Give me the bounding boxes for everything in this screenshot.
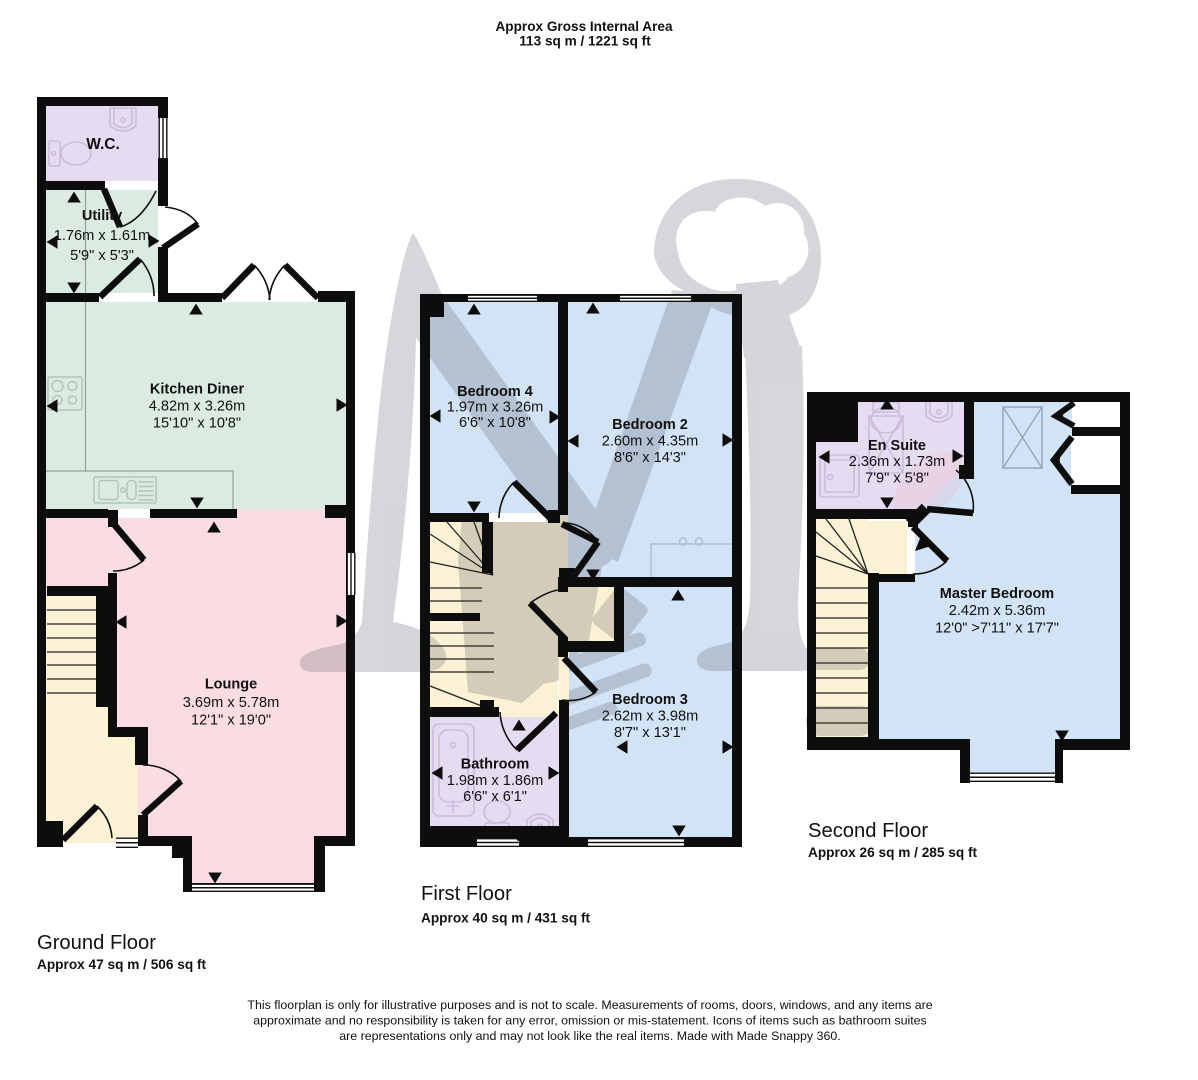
svg-text:2.60m x 4.35m: 2.60m x 4.35m [602,434,699,450]
svg-text:Lounge: Lounge [205,677,257,693]
svg-text:12'0" >7'11" x 17'7": 12'0" >7'11" x 17'7" [935,621,1059,637]
svg-text:1.98m x 1.86m: 1.98m x 1.86m [447,773,544,789]
svg-text:2.36m x 1.73m: 2.36m x 1.73m [849,454,946,470]
svg-text:8'6" x 14'3": 8'6" x 14'3" [614,450,686,466]
svg-text:Approx 40 sq m / 431 sq ft: Approx 40 sq m / 431 sq ft [421,911,591,926]
svg-text:113 sq m / 1221 sq ft: 113 sq m / 1221 sq ft [519,34,651,49]
svg-text:Utility: Utility [82,208,122,224]
svg-text:15'10" x 10'8": 15'10" x 10'8" [153,416,241,432]
svg-text:6'6" x 10'8": 6'6" x 10'8" [459,415,531,431]
svg-text:5'9" x 5'3": 5'9" x 5'3" [70,248,134,264]
svg-text:2.62m x 3.98m: 2.62m x 3.98m [602,709,699,725]
svg-text:Master Bedroom: Master Bedroom [940,586,1054,602]
svg-text:Second Floor: Second Floor [808,820,928,842]
svg-text:2.42m x 5.36m: 2.42m x 5.36m [949,603,1046,619]
svg-text:12'1" x 19'0": 12'1" x 19'0" [191,713,271,729]
svg-text:Bedroom 4: Bedroom 4 [457,384,533,400]
svg-text:1.76m x 1.61m: 1.76m x 1.61m [54,228,151,244]
svg-text:approximate and no responsibil: approximate and no responsibility is tak… [253,1014,927,1028]
svg-text:7'9" x 5'8": 7'9" x 5'8" [865,471,929,487]
svg-text:Bedroom 3: Bedroom 3 [612,692,688,708]
svg-text:8'7" x 13'1": 8'7" x 13'1" [614,725,686,741]
svg-text:Approx 47 sq m / 506 sq ft: Approx 47 sq m / 506 sq ft [37,957,207,972]
svg-text:Kitchen Diner: Kitchen Diner [150,382,245,398]
svg-text:W.C.: W.C. [86,136,120,153]
svg-text:First Floor: First Floor [421,883,512,905]
svg-text:En Suite: En Suite [868,438,926,454]
svg-text:Approx 26 sq m / 285 sq ft: Approx 26 sq m / 285 sq ft [808,845,978,860]
svg-text:Bedroom 2: Bedroom 2 [612,417,688,433]
svg-text:1.97m x 3.26m: 1.97m x 3.26m [447,400,544,416]
svg-text:4.82m x 3.26m: 4.82m x 3.26m [149,399,246,415]
svg-text:3.69m x 5.78m: 3.69m x 5.78m [183,695,280,711]
svg-text:6'6" x 6'1": 6'6" x 6'1" [463,789,527,805]
svg-text:This floorplan is only for ill: This floorplan is only for illustrative … [247,998,932,1012]
svg-text:Ground Floor: Ground Floor [37,932,156,954]
svg-text:Approx Gross Internal Area: Approx Gross Internal Area [495,19,672,34]
svg-text:are representations only and m: are representations only and may not loo… [339,1029,840,1043]
svg-text:Bathroom: Bathroom [461,757,529,773]
